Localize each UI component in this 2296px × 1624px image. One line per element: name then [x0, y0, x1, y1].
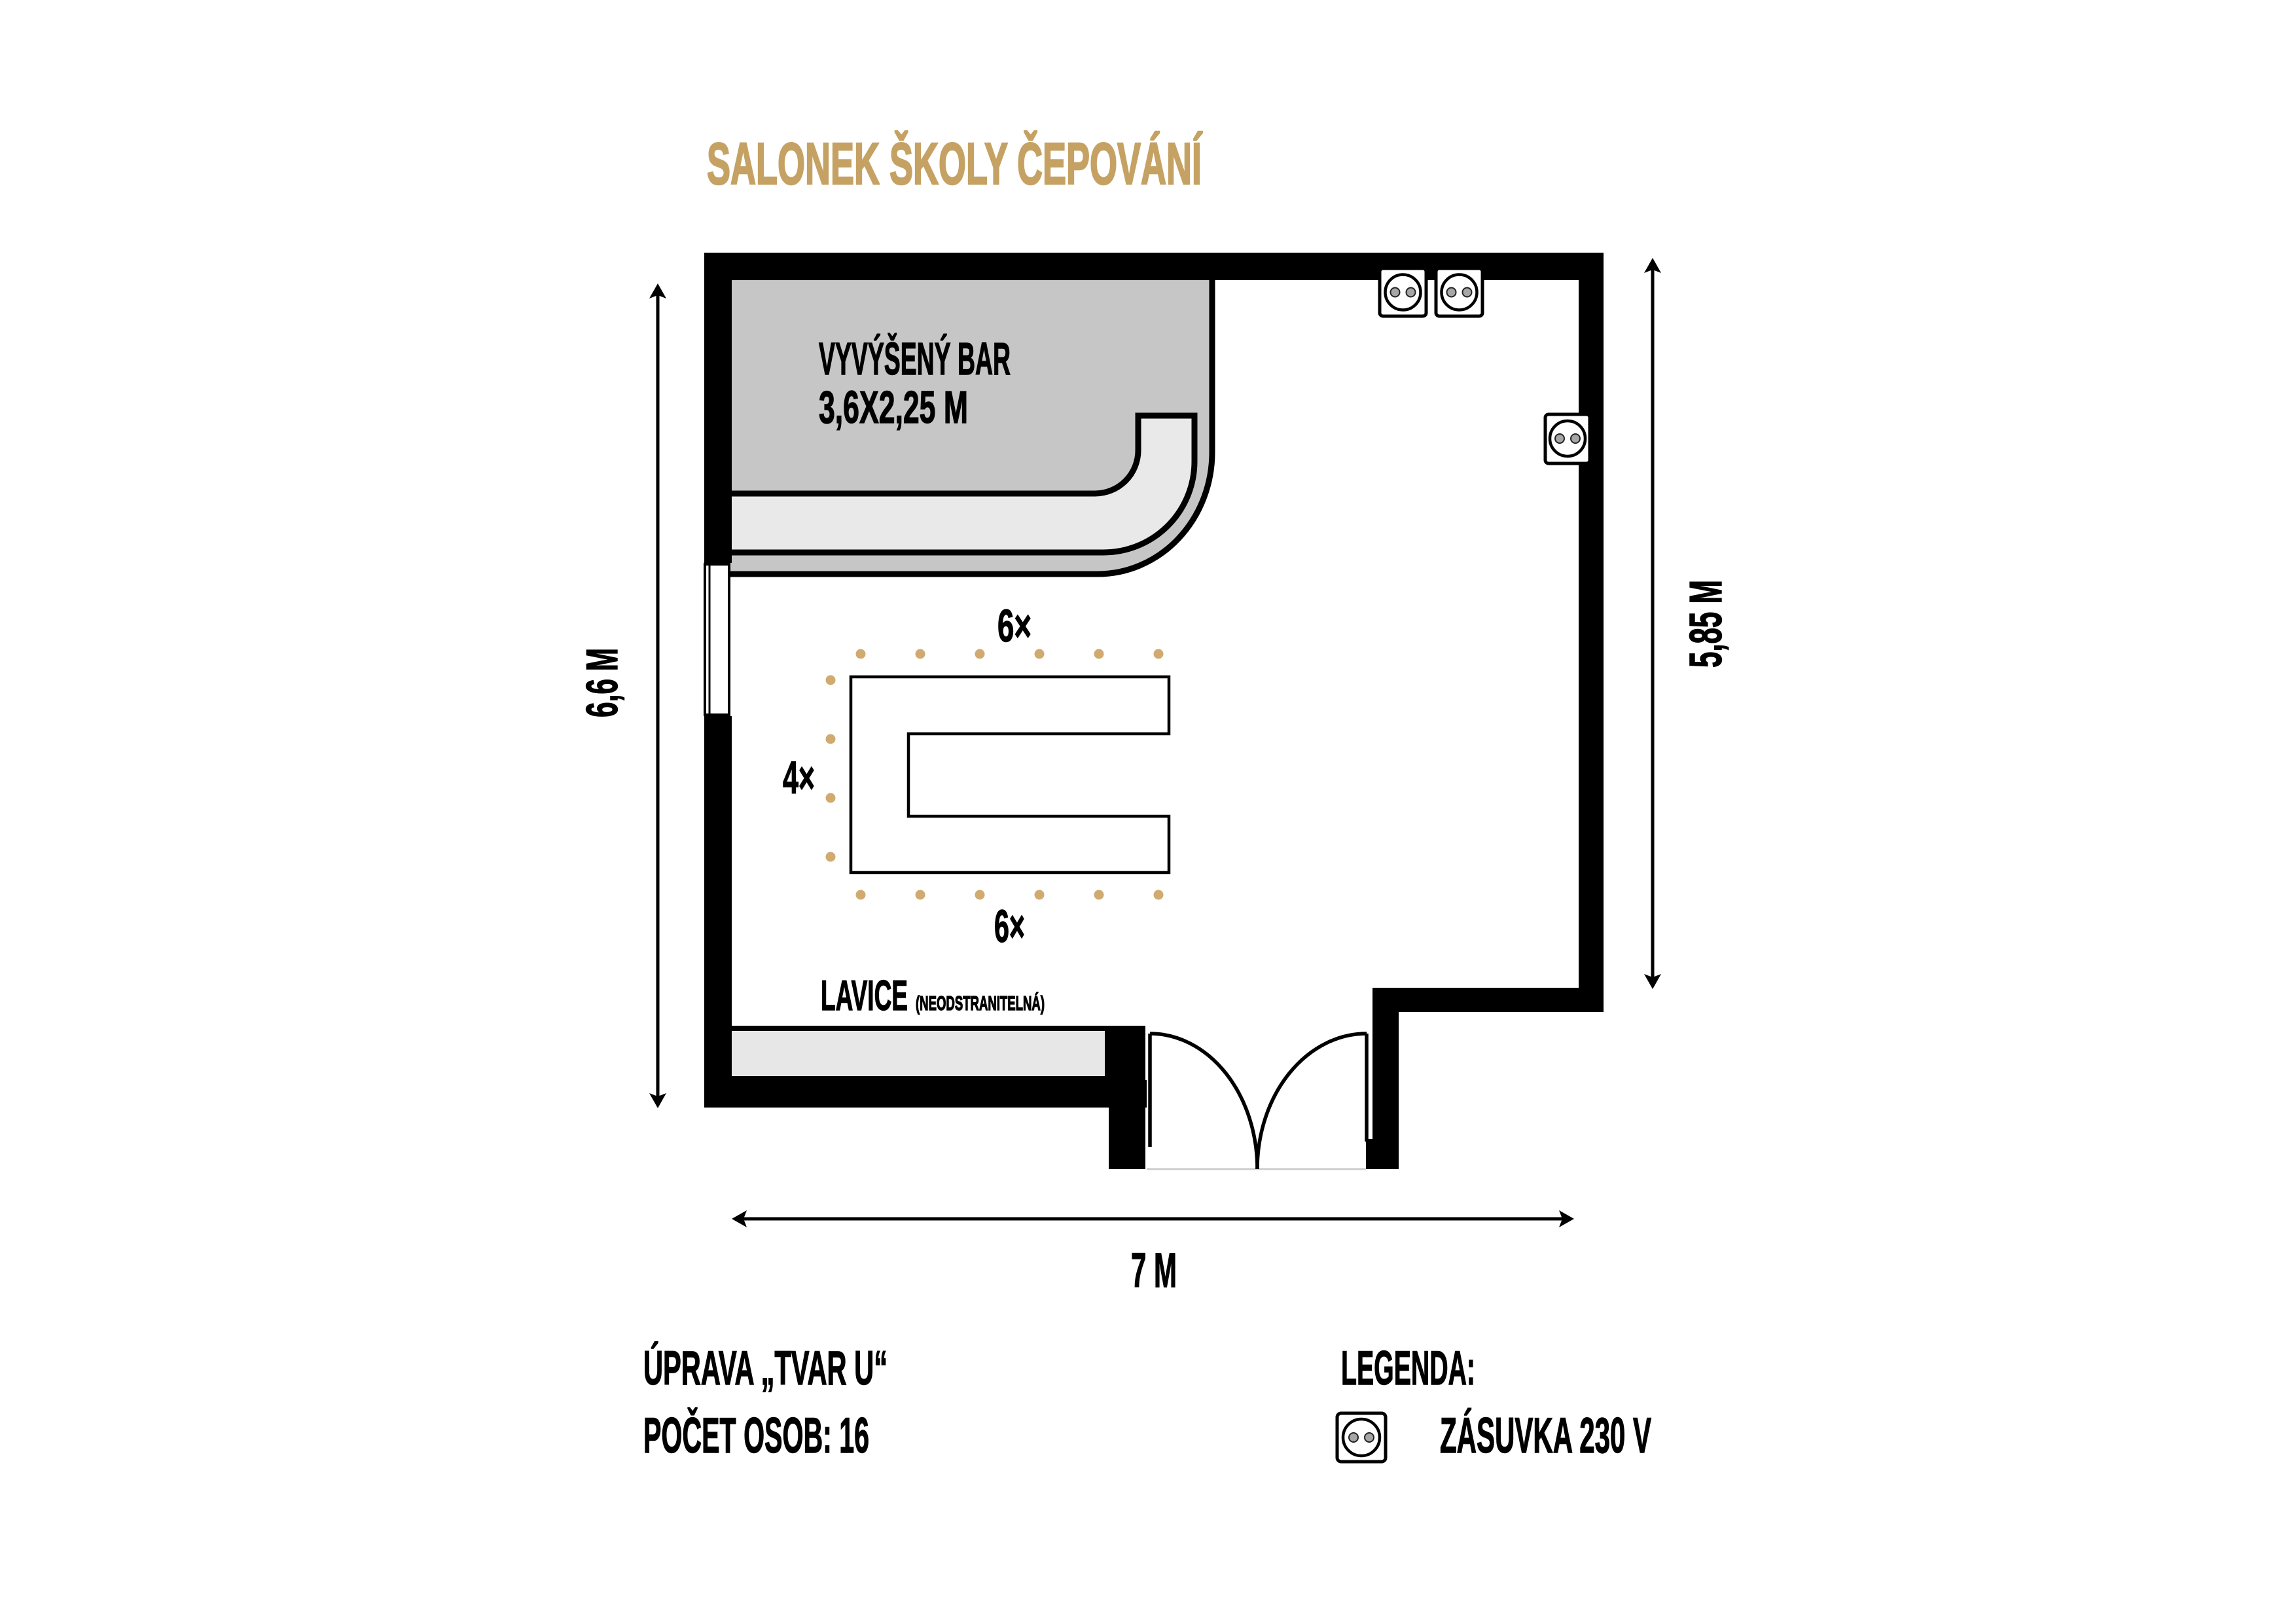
svg-text:LEGENDA:: LEGENDA: — [1341, 1342, 1475, 1395]
svg-text:LAVICE: LAVICE — [821, 971, 908, 1019]
svg-text:VYVÝŠENÝ BAR: VYVÝŠENÝ BAR — [819, 333, 1011, 384]
svg-text:6×: 6× — [997, 600, 1031, 651]
svg-text:ZÁSUVKA 230 V: ZÁSUVKA 230 V — [1440, 1408, 1651, 1464]
svg-text:6×: 6× — [994, 901, 1025, 952]
svg-text:4×: 4× — [783, 752, 815, 803]
svg-text:3,6X2,25 M: 3,6X2,25 M — [819, 382, 968, 433]
svg-text:SALONEK ŠKOLY ČEPOVÁNÍ: SALONEK ŠKOLY ČEPOVÁNÍ — [707, 130, 1202, 197]
svg-text:7 M: 7 M — [1131, 1243, 1177, 1297]
svg-text:ÚPRAVA „TVAR U“: ÚPRAVA „TVAR U“ — [643, 1342, 888, 1395]
svg-text:6,6 M: 6,6 M — [577, 648, 627, 717]
svg-text:POČET OSOB: 16: POČET OSOB: 16 — [643, 1408, 869, 1464]
svg-text:(NEODSTRANITELNÁ): (NEODSTRANITELNÁ) — [916, 992, 1045, 1015]
svg-text:5,85 M: 5,85 M — [1680, 580, 1731, 668]
